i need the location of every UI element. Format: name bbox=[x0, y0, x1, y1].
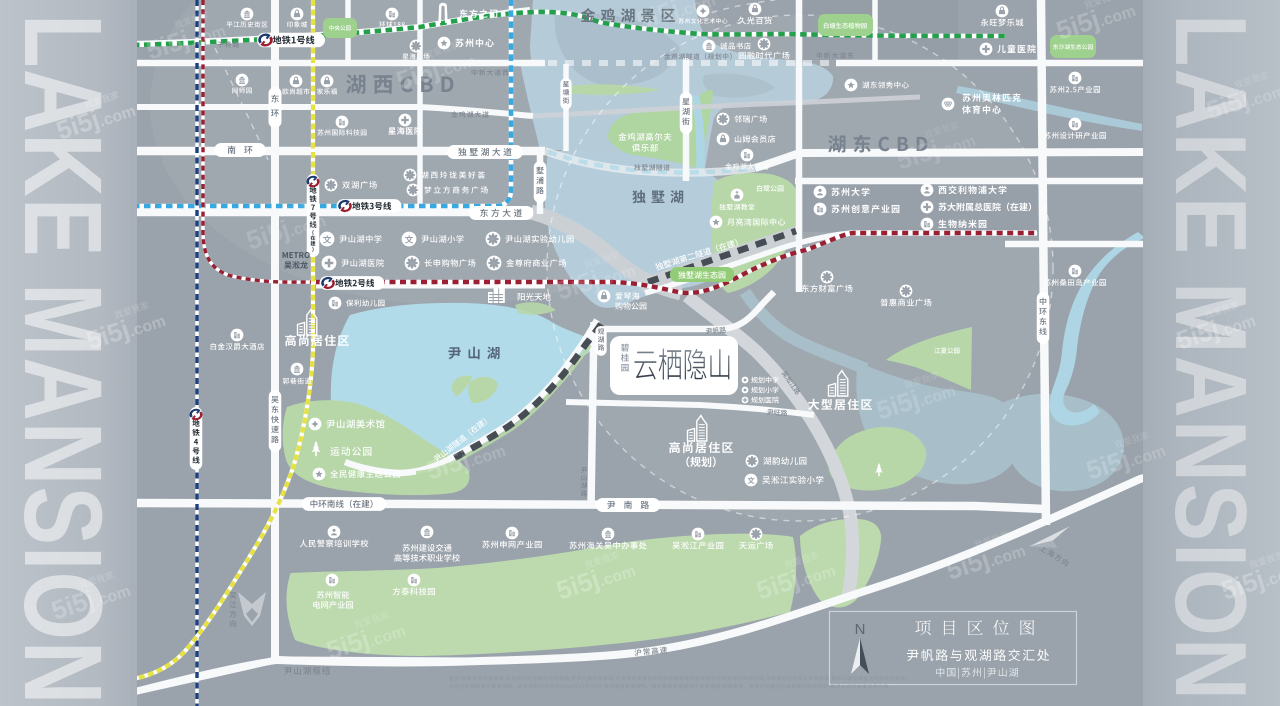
svg-text:N: N bbox=[855, 621, 866, 638]
